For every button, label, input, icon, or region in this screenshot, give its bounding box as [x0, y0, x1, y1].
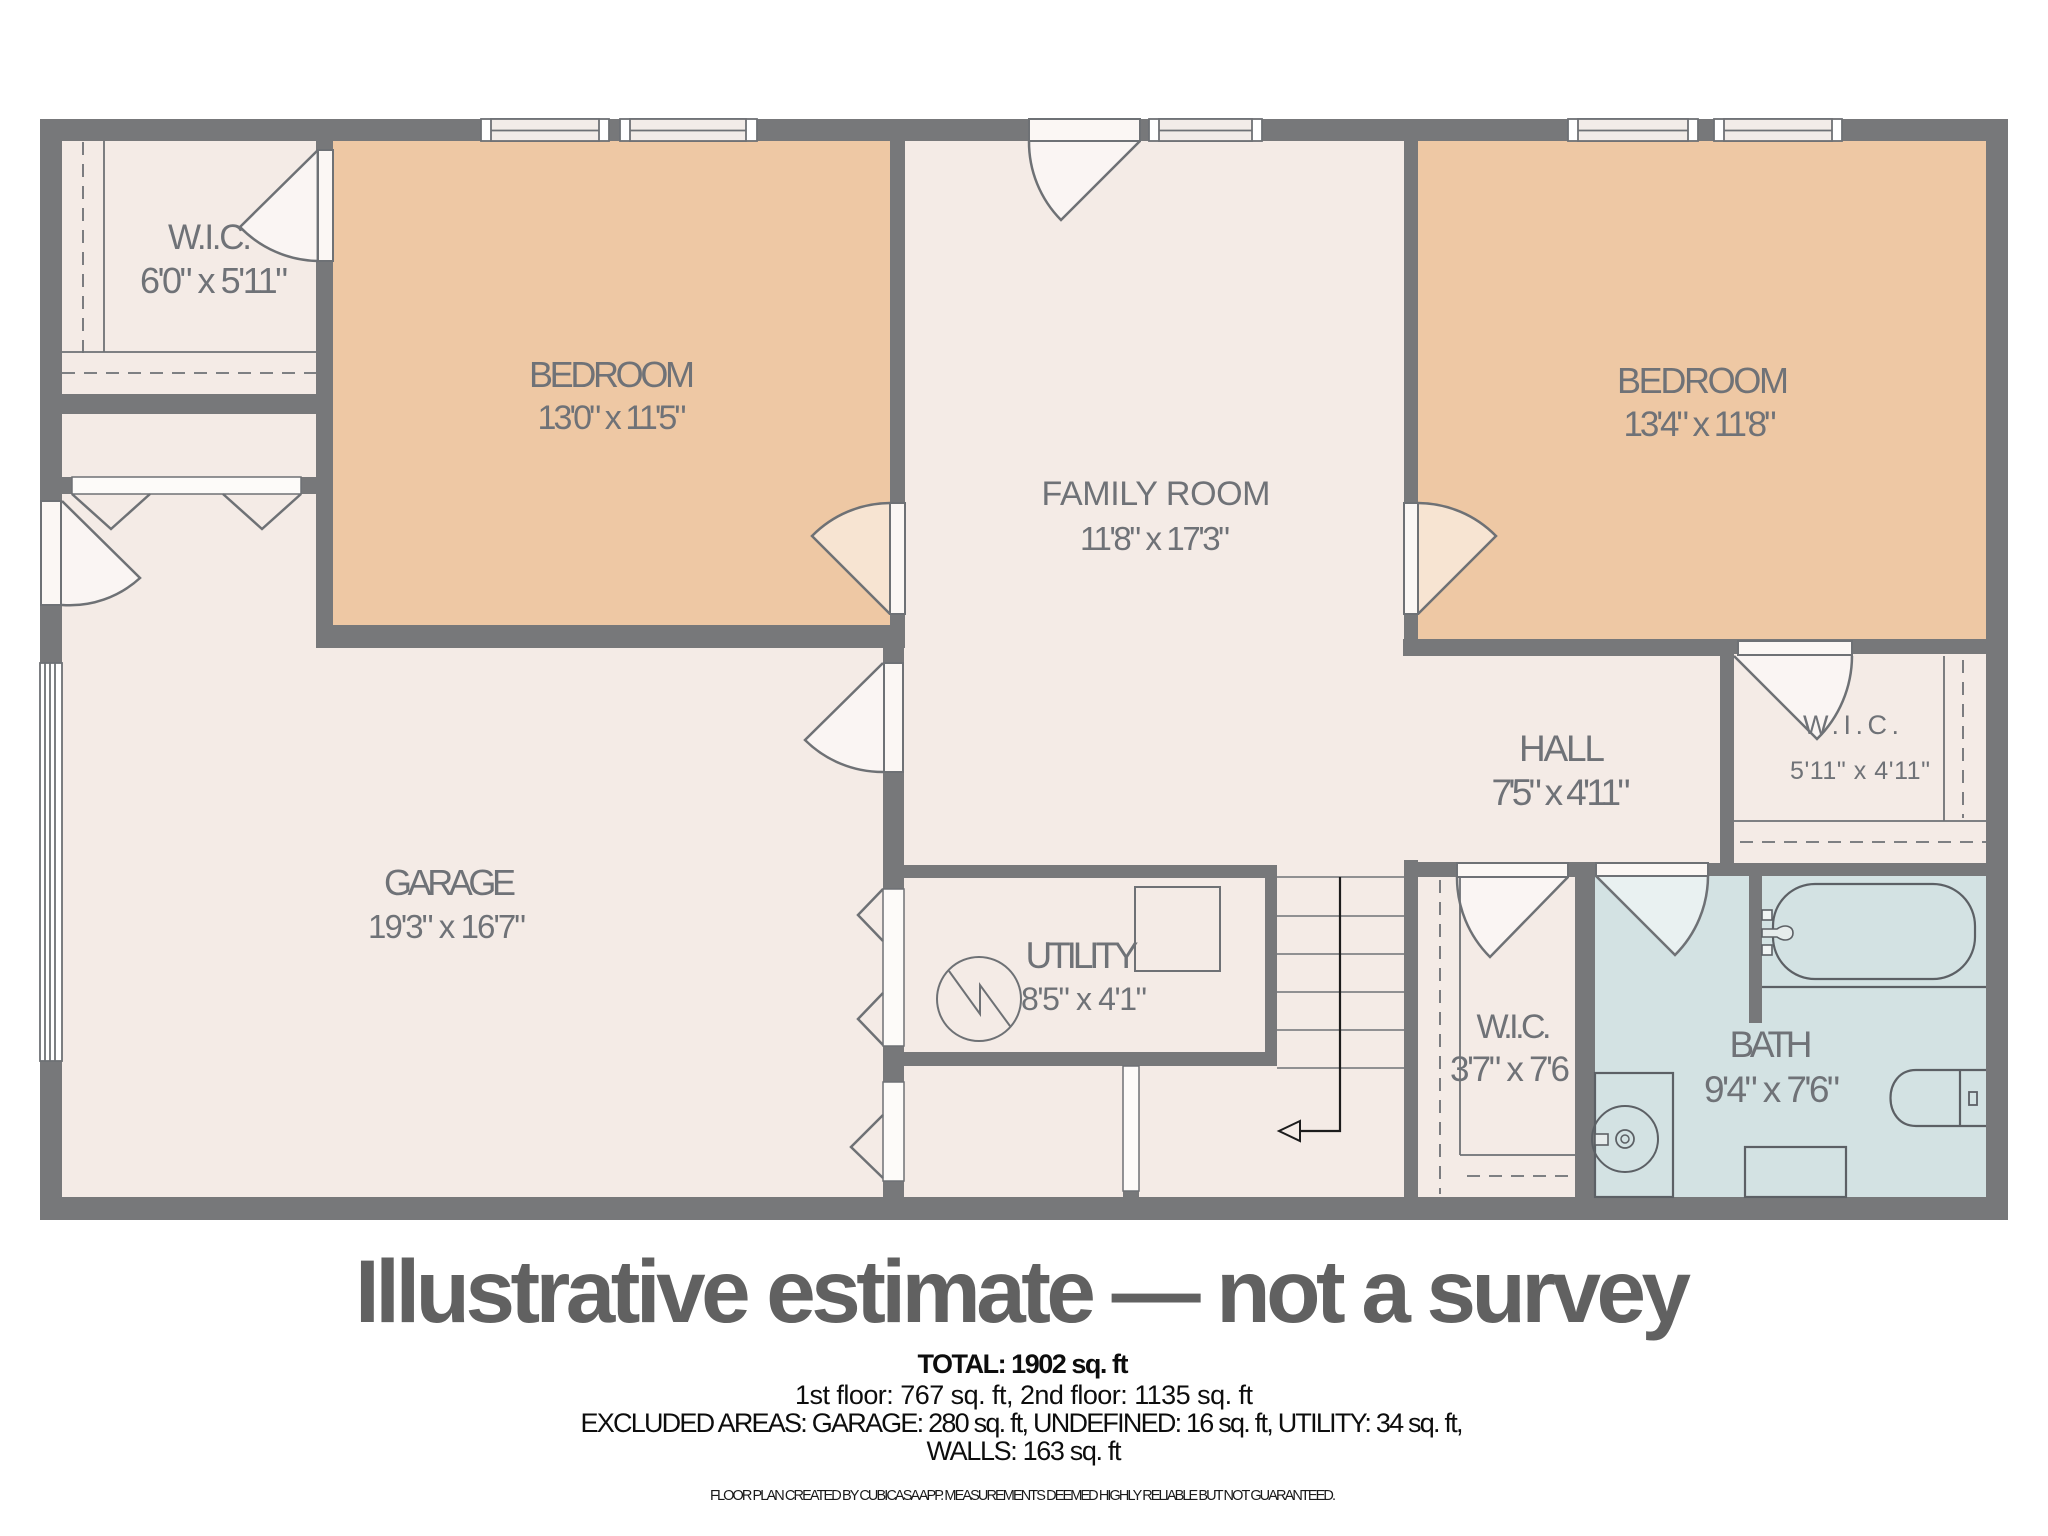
svg-text:W.I.C.: W.I.C. — [1803, 710, 1899, 740]
svg-text:EXCLUDED AREAS: GARAGE: 280 sq: EXCLUDED AREAS: GARAGE: 280 sq. ft, UNDE… — [581, 1408, 1464, 1438]
svg-text:W.I.C.: W.I.C. — [168, 218, 252, 257]
svg-text:5'11" x 4'11": 5'11" x 4'11" — [1790, 757, 1930, 785]
svg-text:1st floor: 767 sq. ft, 2nd flo: 1st floor: 767 sq. ft, 2nd floor: 1135 s… — [795, 1380, 1253, 1410]
svg-text:13'0" x 11'5": 13'0" x 11'5" — [538, 399, 687, 437]
svg-text:WALLS: 163 sq. ft: WALLS: 163 sq. ft — [927, 1436, 1122, 1466]
svg-text:BATH: BATH — [1730, 1024, 1813, 1065]
svg-text:3'7" x 7'6: 3'7" x 7'6 — [1450, 1050, 1570, 1089]
svg-text:UTILITY: UTILITY — [1026, 935, 1139, 976]
svg-text:BEDROOM: BEDROOM — [529, 354, 695, 395]
svg-text:HALL: HALL — [1519, 728, 1605, 769]
svg-text:19'3" x 16'7": 19'3" x 16'7" — [368, 908, 526, 945]
svg-text:11'8" x 17'3": 11'8" x 17'3" — [1080, 520, 1230, 557]
svg-text:13'4" x 11'8": 13'4" x 11'8" — [1624, 405, 1777, 444]
svg-text:W.I.C.: W.I.C. — [1477, 1008, 1552, 1046]
svg-text:GARAGE: GARAGE — [384, 862, 516, 903]
svg-text:8'5" x 4'1": 8'5" x 4'1" — [1021, 981, 1147, 1017]
svg-text:9'4" x 7'6": 9'4" x 7'6" — [1704, 1069, 1840, 1110]
svg-text:FLOOR PLAN CREATED BY CUBICASA: FLOOR PLAN CREATED BY CUBICASA APP. MEAS… — [710, 1488, 1336, 1504]
svg-text:Illustrative estimate — not a: Illustrative estimate — not a survey — [355, 1241, 1692, 1341]
svg-text:BEDROOM: BEDROOM — [1617, 360, 1789, 401]
svg-text:TOTAL: 1902 sq. ft: TOTAL: 1902 sq. ft — [918, 1349, 1129, 1379]
svg-text:FAMILY ROOM: FAMILY ROOM — [1042, 475, 1271, 513]
svg-text:7'5" x 4'11": 7'5" x 4'11" — [1492, 772, 1631, 813]
svg-text:6'0" x 5'11": 6'0" x 5'11" — [140, 260, 288, 301]
